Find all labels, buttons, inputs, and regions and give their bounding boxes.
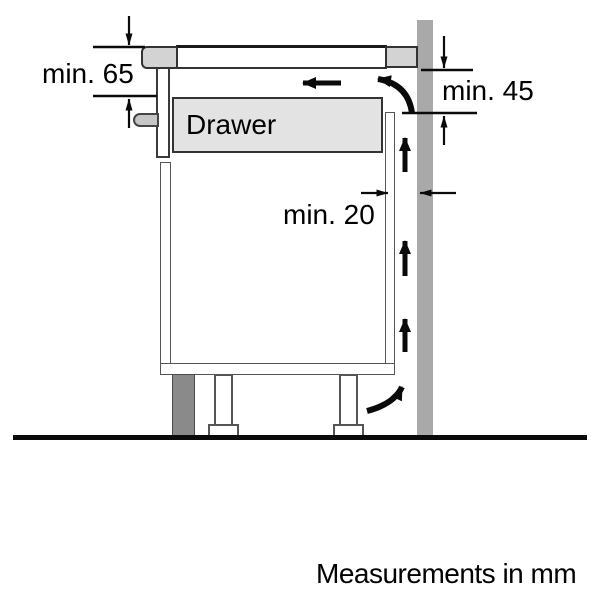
hob-left-trim xyxy=(141,46,178,69)
min45-label: min. 45 xyxy=(442,77,534,105)
airflow-inlet-curve-arrow-icon xyxy=(367,387,402,411)
cabinet-bottom-panel xyxy=(160,363,395,375)
airflow-top-curve-arrow-icon xyxy=(378,79,412,113)
plinth xyxy=(172,374,195,436)
drawer-label: Drawer xyxy=(174,109,276,141)
cabinet-back-panel xyxy=(385,112,395,365)
wall xyxy=(417,20,433,437)
hob-right-trim xyxy=(385,46,418,68)
cabinet-leg-front-shaft xyxy=(214,374,233,426)
cabinet-side-panel xyxy=(160,162,171,374)
hob-body xyxy=(176,45,387,69)
units-footnote: Measurements in mm xyxy=(316,560,576,588)
min20-label: min. 20 xyxy=(283,201,375,229)
installation-diagram: Drawer xyxy=(0,0,600,600)
floor-line xyxy=(13,435,587,440)
drawer-box: Drawer xyxy=(172,97,383,153)
min65-label: min. 65 xyxy=(42,60,134,88)
drawer-handle-icon xyxy=(133,113,159,127)
cabinet-leg-rear-shaft xyxy=(339,374,358,426)
